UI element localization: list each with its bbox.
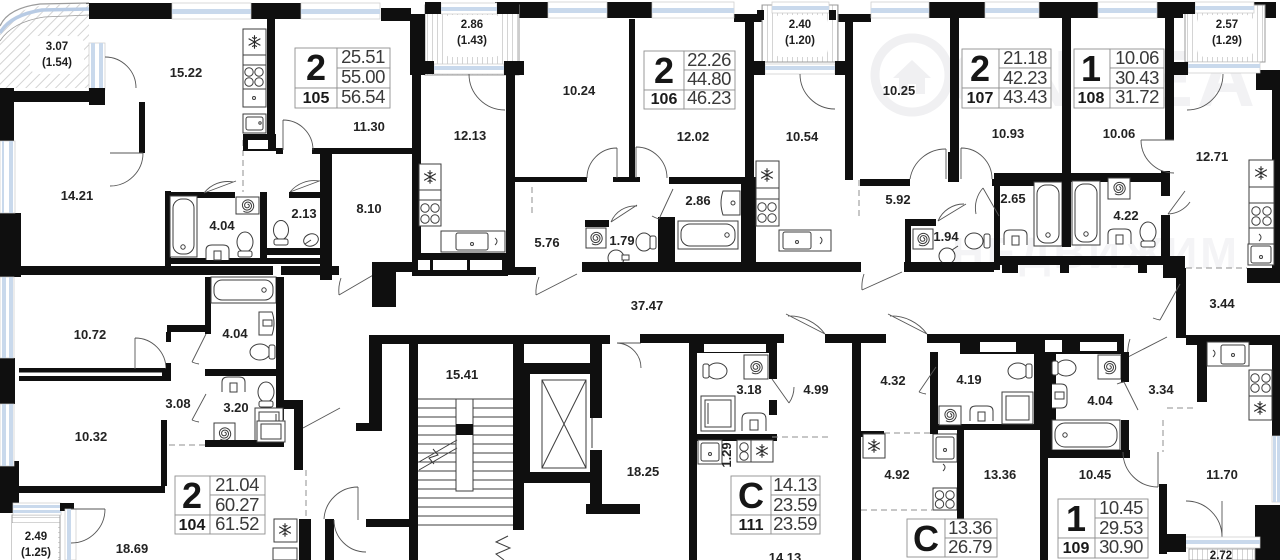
svg-text:21.04: 21.04	[215, 474, 259, 495]
svg-text:10.45: 10.45	[1099, 497, 1143, 518]
svg-text:30.90: 30.90	[1099, 536, 1143, 557]
svg-text:1: 1	[1066, 498, 1086, 539]
svg-text:22.26: 22.26	[687, 49, 731, 70]
svg-text:56.54: 56.54	[341, 86, 385, 107]
svg-text:10.93: 10.93	[992, 126, 1025, 141]
svg-text:10.06: 10.06	[1115, 47, 1159, 68]
svg-text:3.08: 3.08	[165, 396, 190, 411]
svg-text:(1.54): (1.54)	[42, 57, 72, 69]
svg-text:2.65: 2.65	[1000, 191, 1025, 206]
svg-text:1.79: 1.79	[609, 233, 634, 248]
svg-text:4.99: 4.99	[803, 382, 828, 397]
svg-text:44.80: 44.80	[687, 68, 731, 89]
svg-text:13.36: 13.36	[948, 517, 992, 538]
svg-text:(1.29): (1.29)	[1212, 35, 1242, 47]
svg-text:43.43: 43.43	[1003, 86, 1047, 107]
svg-text:13.36: 13.36	[984, 467, 1017, 482]
svg-text:4.22: 4.22	[1113, 208, 1138, 223]
svg-text:2: 2	[182, 475, 202, 516]
svg-text:104: 104	[179, 517, 206, 534]
svg-text:14.21: 14.21	[61, 188, 94, 203]
svg-text:С: С	[738, 475, 764, 516]
svg-text:3.18: 3.18	[736, 382, 761, 397]
svg-text:14.13: 14.13	[773, 474, 817, 495]
svg-text:2: 2	[970, 48, 990, 89]
svg-text:107: 107	[967, 90, 994, 107]
svg-text:8.10: 8.10	[356, 201, 381, 216]
svg-text:2: 2	[306, 47, 326, 88]
svg-text:37.47: 37.47	[631, 298, 664, 313]
svg-text:14.13: 14.13	[769, 550, 802, 560]
svg-text:2.72: 2.72	[1210, 550, 1232, 560]
svg-text:30.43: 30.43	[1115, 67, 1159, 88]
svg-text:23.59: 23.59	[773, 494, 817, 515]
svg-text:23.59: 23.59	[773, 513, 817, 534]
svg-text:4.04: 4.04	[1087, 393, 1113, 408]
svg-text:12.13: 12.13	[454, 128, 487, 143]
svg-text:25.51: 25.51	[341, 46, 385, 67]
svg-text:111: 111	[739, 517, 764, 534]
svg-text:4.32: 4.32	[880, 373, 905, 388]
svg-text:4.04: 4.04	[222, 326, 248, 341]
svg-text:18.25: 18.25	[627, 464, 660, 479]
svg-text:10.32: 10.32	[75, 429, 108, 444]
svg-text:5.76: 5.76	[534, 235, 559, 250]
svg-text:2.86: 2.86	[461, 19, 483, 31]
svg-text:18.69: 18.69	[116, 541, 149, 556]
svg-text:4.04: 4.04	[209, 218, 235, 233]
svg-text:3.07: 3.07	[46, 41, 68, 53]
svg-text:2.40: 2.40	[789, 19, 811, 31]
svg-text:1: 1	[1081, 48, 1101, 89]
svg-text:60.27: 60.27	[215, 494, 259, 515]
svg-text:10.45: 10.45	[1079, 467, 1112, 482]
svg-text:26.79: 26.79	[948, 536, 992, 557]
svg-text:105: 105	[303, 90, 330, 107]
svg-text:4.92: 4.92	[884, 467, 909, 482]
svg-text:2.86: 2.86	[685, 193, 710, 208]
svg-text:15.41: 15.41	[446, 367, 479, 382]
svg-text:61.52: 61.52	[215, 513, 259, 534]
svg-text:15.22: 15.22	[170, 65, 203, 80]
svg-text:(1.20): (1.20)	[785, 35, 815, 47]
svg-text:10.24: 10.24	[563, 83, 596, 98]
svg-text:10.25: 10.25	[883, 83, 916, 98]
svg-text:С: С	[913, 518, 939, 559]
svg-text:46.23: 46.23	[687, 87, 731, 108]
svg-text:1.29: 1.29	[719, 442, 734, 467]
svg-text:42.23: 42.23	[1003, 67, 1047, 88]
svg-text:2: 2	[654, 50, 674, 91]
svg-text:29.53: 29.53	[1099, 517, 1143, 538]
svg-text:3.34: 3.34	[1148, 382, 1174, 397]
svg-text:55.00: 55.00	[341, 66, 385, 87]
svg-text:109: 109	[1063, 540, 1090, 557]
svg-text:11.30: 11.30	[353, 119, 385, 134]
svg-text:5.92: 5.92	[885, 192, 910, 207]
svg-text:11.70: 11.70	[1206, 467, 1238, 482]
svg-text:31.72: 31.72	[1115, 86, 1159, 107]
svg-text:21.18: 21.18	[1003, 47, 1047, 68]
svg-text:(1.25): (1.25)	[21, 547, 51, 559]
svg-text:2.13: 2.13	[291, 206, 316, 221]
svg-text:12.71: 12.71	[1196, 149, 1229, 164]
svg-text:108: 108	[1078, 90, 1105, 107]
svg-text:106: 106	[651, 91, 678, 108]
svg-text:1.94: 1.94	[933, 229, 959, 244]
svg-text:2.49: 2.49	[25, 531, 47, 543]
svg-text:12.02: 12.02	[677, 129, 710, 144]
svg-text:10.06: 10.06	[1103, 126, 1136, 141]
svg-text:3.20: 3.20	[223, 400, 248, 415]
svg-text:10.54: 10.54	[786, 129, 819, 144]
svg-text:3.44: 3.44	[1209, 296, 1235, 311]
svg-text:2.57: 2.57	[1216, 19, 1238, 31]
svg-text:(1.43): (1.43)	[457, 35, 487, 47]
svg-text:10.72: 10.72	[74, 327, 107, 342]
svg-text:4.19: 4.19	[956, 372, 981, 387]
